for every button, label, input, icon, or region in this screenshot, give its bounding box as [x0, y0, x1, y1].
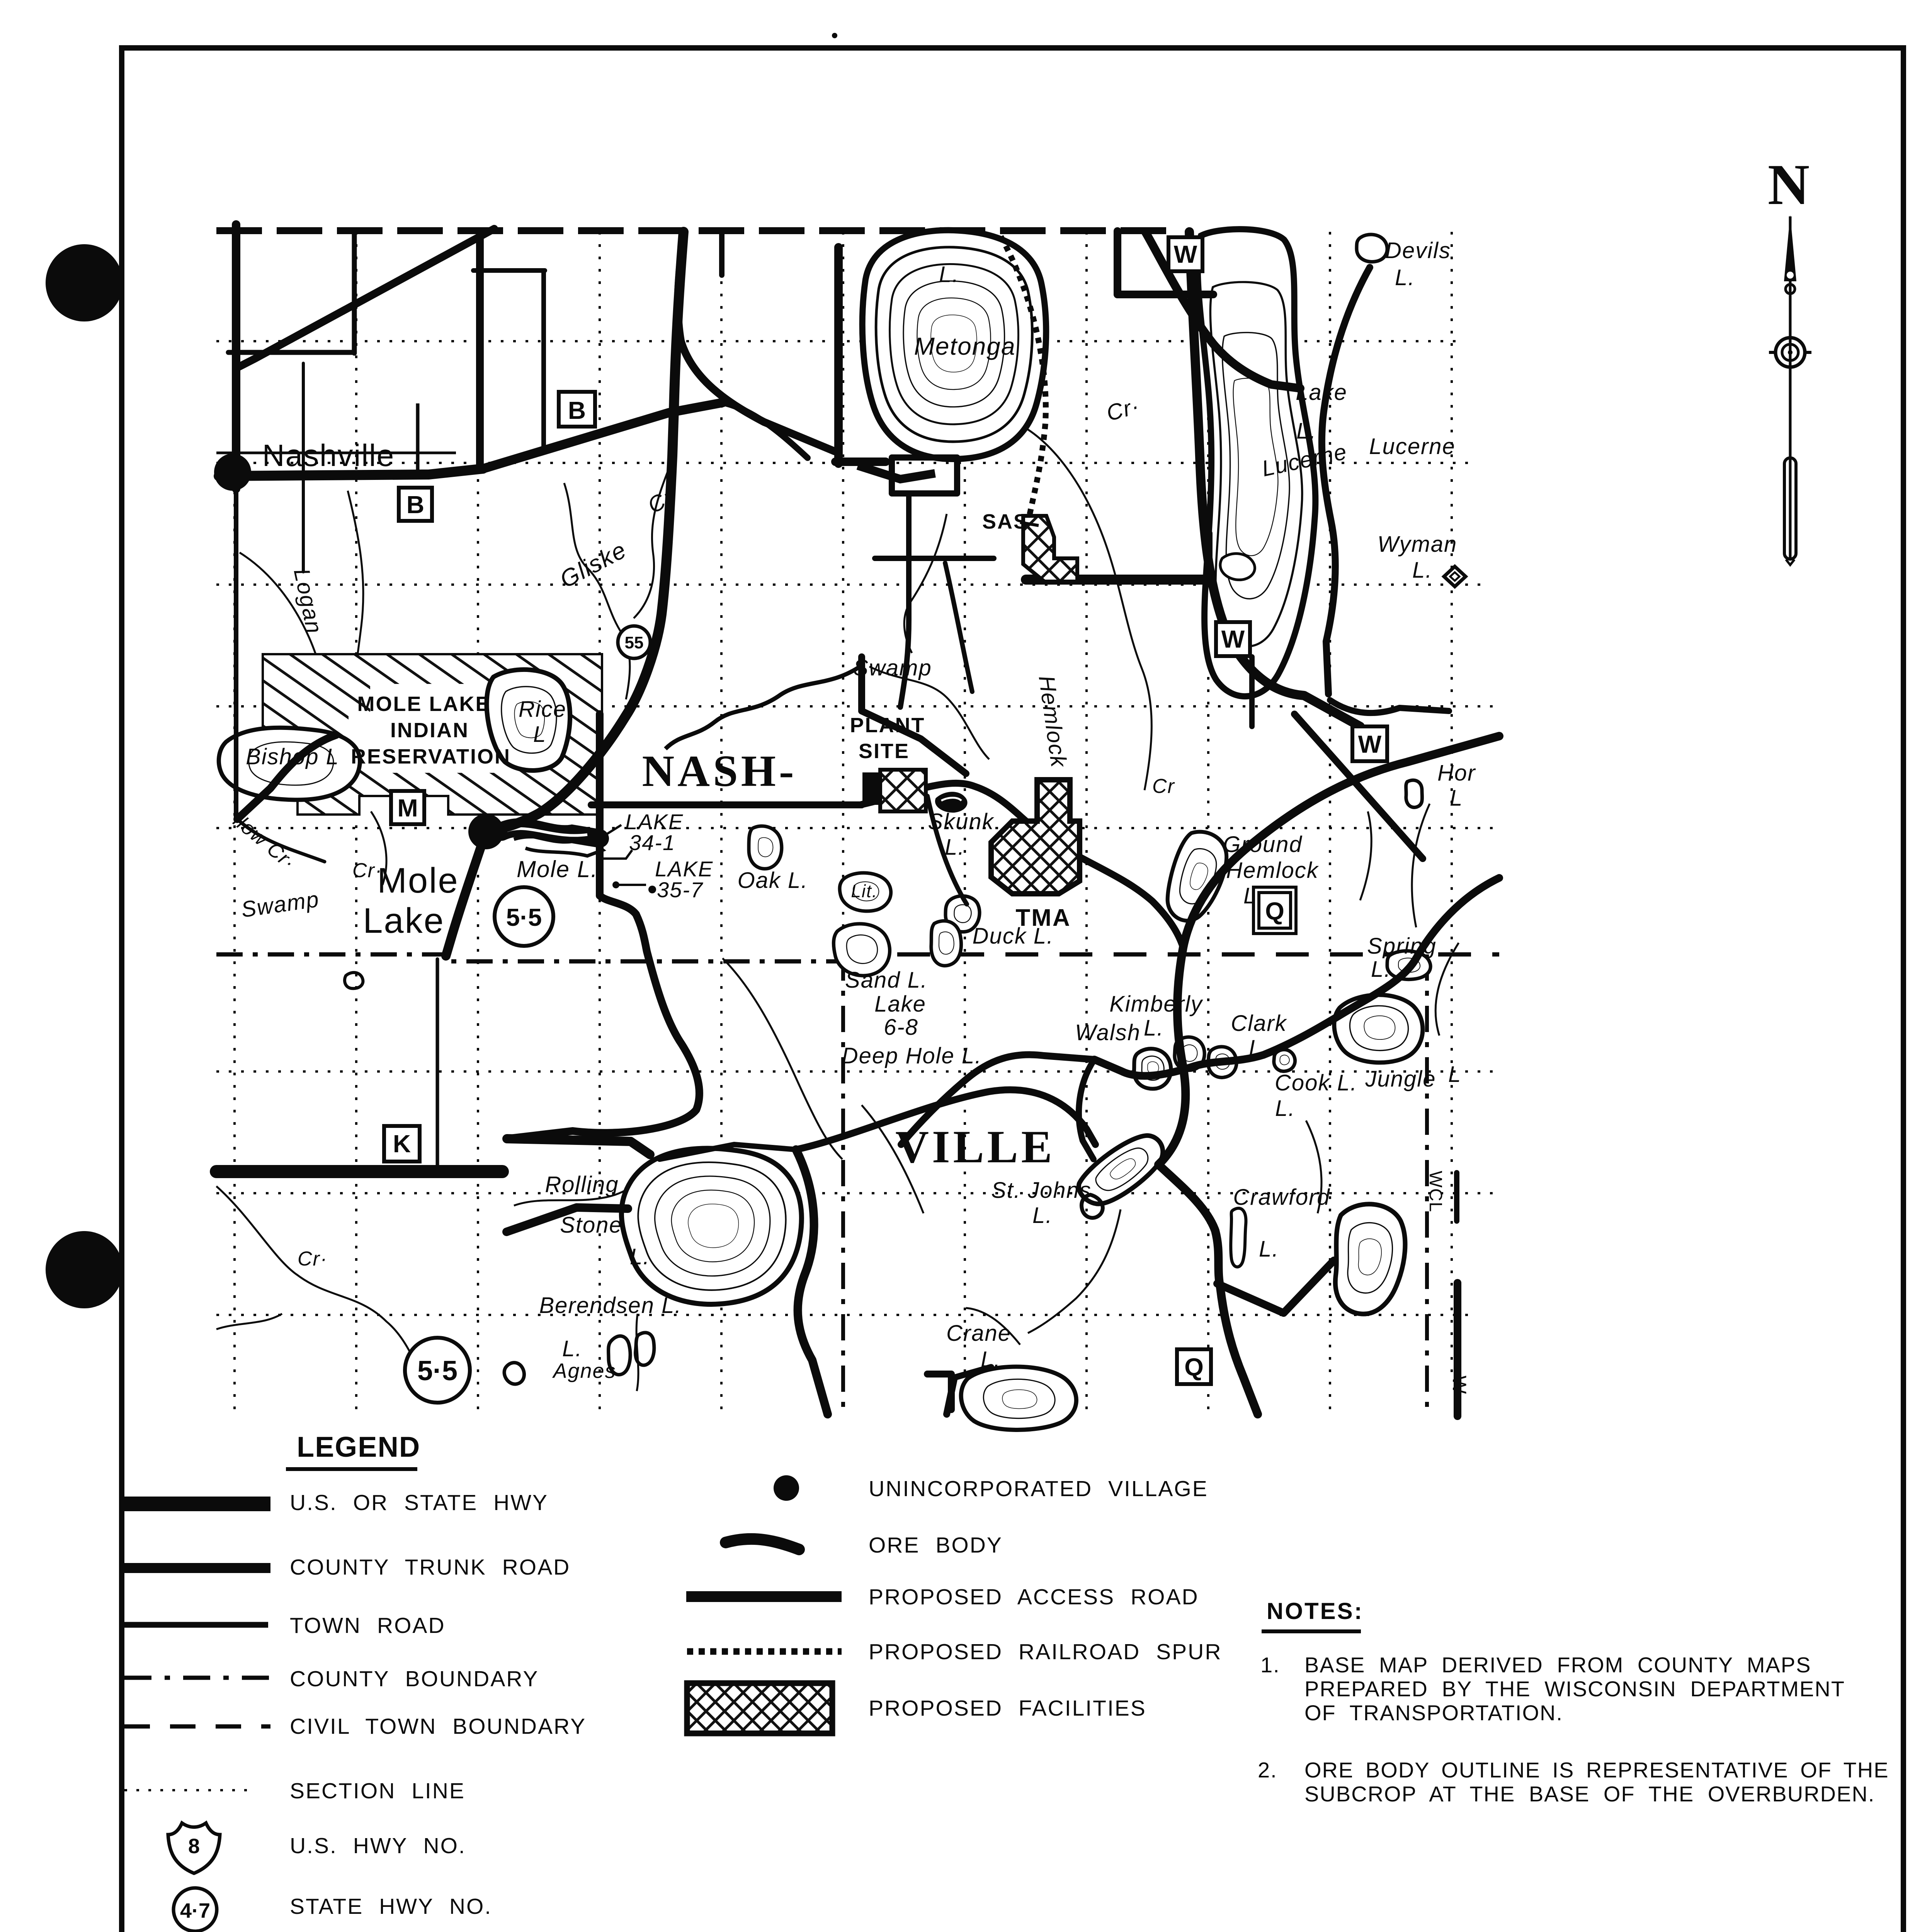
svg-text:6-8: 6-8 [884, 1015, 918, 1040]
svg-text:Logan: Logan [289, 566, 327, 636]
svg-text:2.: 2. [1258, 1758, 1277, 1782]
svg-text:Swamp: Swamp [240, 886, 321, 922]
svg-text:Mole: Mole [377, 861, 459, 900]
svg-text:Gliske: Gliske [556, 536, 631, 593]
svg-text:TMA: TMA [1015, 905, 1071, 931]
svg-text:B: B [406, 491, 424, 519]
svg-text:PLANT: PLANT [850, 714, 925, 737]
svg-text:Kimberly: Kimberly [1109, 992, 1203, 1017]
svg-text:PREPARED BY THE WISCONSIN DEPA: PREPARED BY THE WISCONSIN DEPARTMENT [1304, 1677, 1845, 1701]
svg-text:Deep Hole L.: Deep Hole L. [842, 1043, 982, 1068]
svg-text:INDIAN: INDIAN [390, 719, 469, 742]
svg-text:L.: L. [1259, 1236, 1279, 1262]
svg-text:CIVIL TOWN BOUNDARY: CIVIL TOWN BOUNDARY [290, 1714, 586, 1739]
svg-text:W: W [1174, 240, 1197, 268]
svg-text:L.: L. [1144, 1015, 1164, 1041]
svg-text:PROPOSED ACCESS ROAD: PROPOSED ACCESS ROAD [869, 1585, 1199, 1609]
svg-text:Spring: Spring [1367, 934, 1437, 959]
svg-text:COUNTY TRUNK ROAD: COUNTY TRUNK ROAD [290, 1555, 570, 1580]
svg-text:W: W [1358, 730, 1382, 758]
svg-text:B: B [568, 396, 586, 424]
svg-text:34-1: 34-1 [629, 830, 675, 855]
svg-text:8: 8 [188, 1835, 200, 1858]
svg-text:L.: L. [945, 835, 965, 860]
svg-text:1.: 1. [1260, 1653, 1280, 1677]
svg-text:Cr: Cr [1152, 775, 1175, 798]
svg-text:MOLE LAKE: MOLE LAKE [357, 692, 491, 716]
svg-text:L.: L. [1412, 558, 1432, 583]
svg-text:Devils: Devils [1385, 238, 1451, 263]
svg-text:N: N [1768, 153, 1810, 217]
svg-text:Cook L.: Cook L. [1275, 1070, 1357, 1095]
svg-text:St. Johns: St. Johns [991, 1178, 1092, 1203]
svg-text:TOWN ROAD: TOWN ROAD [290, 1613, 446, 1638]
svg-text:SITE: SITE [859, 740, 910, 763]
svg-text:Metonga: Metonga [914, 332, 1015, 360]
svg-text:Cr·: Cr· [1104, 393, 1143, 426]
svg-text:PROPOSED RAILROAD SPUR: PROPOSED RAILROAD SPUR [869, 1639, 1222, 1664]
svg-text:Swamp: Swamp [853, 655, 932, 680]
svg-text:Clark: Clark [1231, 1011, 1287, 1036]
svg-text:NOTES:: NOTES: [1267, 1598, 1364, 1624]
svg-text:SUBCROP AT THE BASE OF THE OVE: SUBCROP AT THE BASE OF THE OVERBURDEN. [1304, 1782, 1875, 1806]
svg-text:STATE HWY NO.: STATE HWY NO. [290, 1894, 492, 1919]
svg-text:UNINCORPORATED VILLAGE: UNINCORPORATED VILLAGE [869, 1476, 1208, 1501]
svg-text:Walsh: Walsh [1075, 1020, 1141, 1045]
svg-text:SECTION LINE: SECTION LINE [290, 1779, 465, 1803]
svg-text:Wyman: Wyman [1378, 532, 1458, 557]
svg-text:Hor: Hor [1437, 760, 1476, 786]
svg-text:Rice: Rice [519, 697, 566, 722]
svg-text:Hemlock: Hemlock [1226, 858, 1319, 883]
svg-text:L.: L. [1395, 265, 1415, 290]
svg-text:LEGEND: LEGEND [297, 1431, 420, 1463]
svg-text:VILLE: VILLE [895, 1121, 1055, 1172]
svg-text:Lake: Lake [363, 901, 445, 940]
svg-text:Q: Q [1265, 897, 1284, 925]
svg-text:Crawford: Crawford [1233, 1185, 1330, 1210]
svg-text:Lit.: Lit. [851, 881, 878, 901]
svg-text:Ground: Ground [1223, 832, 1302, 857]
svg-text:W: W [1221, 625, 1245, 653]
svg-text:L.: L. [1371, 957, 1391, 982]
svg-text:WCL: WCL [1426, 1171, 1446, 1213]
svg-text:L: L [1450, 786, 1463, 811]
svg-text:L.: L. [1249, 1036, 1269, 1061]
svg-text:L.: L. [562, 1336, 582, 1361]
svg-text:W: W [1449, 1376, 1470, 1395]
svg-text:Agnes: Agnes [552, 1359, 616, 1383]
svg-text:5·5: 5·5 [506, 903, 542, 931]
svg-text:Lucerne: Lucerne [1369, 434, 1456, 459]
svg-text:4·7: 4·7 [180, 1899, 210, 1922]
svg-text:K: K [393, 1130, 411, 1158]
svg-text:U.S. OR STATE HWY: U.S. OR STATE HWY [290, 1490, 548, 1515]
svg-text:L.: L. [1032, 1203, 1053, 1228]
svg-text:llow Cr·: llow Cr· [229, 810, 300, 874]
svg-text:Cr·: Cr· [298, 1248, 328, 1270]
svg-text:Crane: Crane [946, 1321, 1011, 1346]
svg-text:RESERVATION: RESERVATION [351, 745, 511, 768]
svg-text:Lake: Lake [874, 992, 926, 1017]
svg-text:Q: Q [1184, 1353, 1204, 1381]
svg-text:L.: L. [1296, 418, 1316, 444]
svg-text:L.: L. [981, 1347, 1001, 1372]
svg-text:NASH-: NASH- [642, 747, 797, 796]
svg-text:5·5: 5·5 [417, 1355, 457, 1386]
svg-text:PROPOSED FACILITIES: PROPOSED FACILITIES [869, 1696, 1146, 1721]
svg-text:Jungle: Jungle [1365, 1066, 1436, 1092]
svg-text:L.: L. [1275, 1096, 1295, 1121]
svg-text:BASE MAP DERIVED FROM COUNTY M: BASE MAP DERIVED FROM COUNTY MAPS [1304, 1653, 1811, 1677]
svg-text:ORE BODY OUTLINE IS REPRESENTA: ORE BODY OUTLINE IS REPRESENTATIVE OF TH… [1304, 1758, 1889, 1782]
svg-text:55: 55 [625, 633, 644, 652]
svg-text:Berendsen L.: Berendsen L. [539, 1293, 682, 1318]
svg-text:Hemlock: Hemlock [1034, 674, 1071, 769]
svg-text:L: L [1448, 1062, 1461, 1087]
svg-text:Mole L.: Mole L. [517, 856, 598, 882]
svg-text:L: L [533, 722, 546, 747]
svg-text:L.: L. [939, 262, 959, 287]
svg-text:L.: L. [630, 1244, 650, 1269]
svg-text:Bishop L: Bishop L [246, 744, 339, 769]
svg-text:Oak L.: Oak L. [738, 868, 808, 893]
svg-text:Rolling: Rolling [545, 1172, 619, 1197]
svg-text:Stone: Stone [560, 1213, 622, 1238]
svg-text:Skunk: Skunk [928, 809, 994, 834]
svg-text:35-7: 35-7 [657, 878, 703, 902]
svg-text:Nashville: Nashville [262, 438, 395, 473]
svg-text:OF TRANSPORTATION.: OF TRANSPORTATION. [1304, 1701, 1563, 1725]
svg-text:M: M [397, 794, 418, 822]
svg-text:U.S. HWY NO.: U.S. HWY NO. [290, 1833, 466, 1858]
svg-text:ORE BODY: ORE BODY [869, 1533, 1003, 1558]
svg-text:COUNTY BOUNDARY: COUNTY BOUNDARY [290, 1667, 539, 1691]
svg-text:Lake: Lake [1296, 380, 1347, 405]
svg-text:Sand L.: Sand L. [845, 968, 928, 993]
